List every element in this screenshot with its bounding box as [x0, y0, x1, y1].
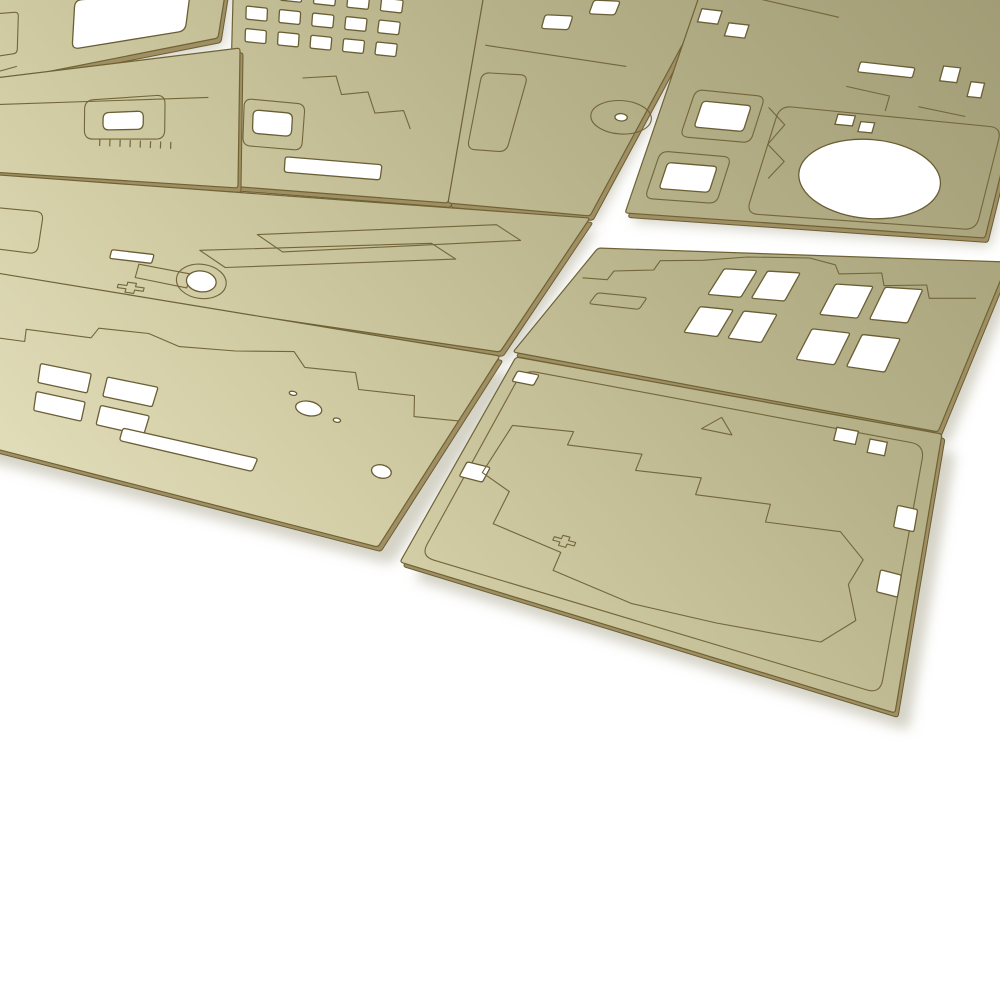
clasp-slot-cutout — [660, 163, 716, 192]
small-hole — [940, 66, 961, 83]
window-grid-cutouts-cutout — [378, 20, 400, 35]
slot-cutout — [867, 439, 887, 456]
window-grid-cutouts-cutout — [312, 13, 334, 28]
window-grid-cutouts-cutout — [279, 10, 301, 25]
center-hole — [615, 113, 628, 121]
slot-cutout — [877, 570, 901, 597]
slot-cutout — [542, 15, 572, 30]
rounded-slot-cutout — [253, 110, 293, 136]
window-grid-cutouts-cutout — [310, 35, 332, 50]
clasp-slot-cutout — [695, 101, 750, 131]
window-grid-cutouts-cutout — [345, 17, 367, 32]
slot-cutout — [894, 506, 918, 532]
slot-cutout — [724, 23, 749, 38]
window-grid-cutouts-cutout — [278, 32, 299, 47]
scene-svg — [0, 0, 1000, 1000]
small-hole — [858, 122, 875, 133]
slot-cutout — [698, 9, 723, 25]
window-grid-cutouts-cutout — [347, 0, 369, 9]
window-grid-cutouts-cutout — [375, 42, 397, 56]
window-grid-cutouts-cutout — [246, 6, 268, 21]
rounded-slot-cutout — [103, 111, 143, 130]
slot-cutout — [590, 0, 620, 15]
window-grid-cutouts-cutout — [380, 0, 403, 13]
photo-canvas — [0, 0, 1000, 1000]
small-hole — [835, 114, 855, 126]
window-grid-cutouts-cutout — [343, 39, 365, 54]
small-hole — [967, 82, 985, 98]
window-grid-cutouts-cutout — [245, 29, 266, 44]
